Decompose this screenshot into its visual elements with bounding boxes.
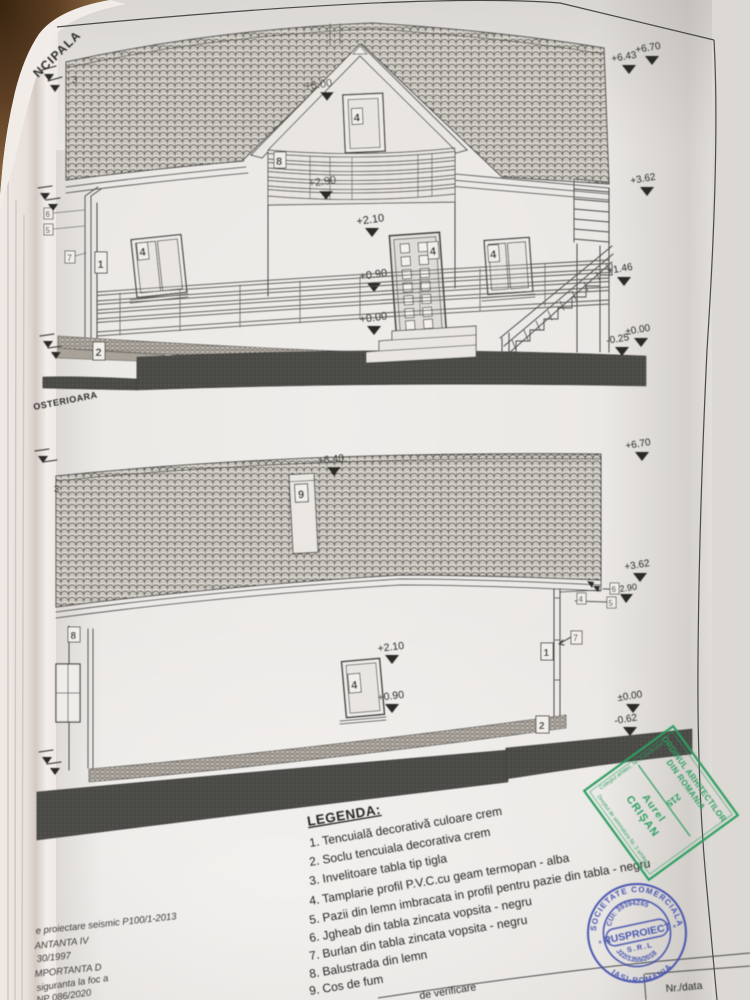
svg-text:8: 8 [71,631,77,642]
svg-text:6: 6 [612,585,617,594]
svg-text:5: 5 [46,226,51,235]
svg-text:3: 3 [54,484,59,494]
svg-text:5: 5 [609,599,614,608]
svg-text:6: 6 [46,210,51,219]
svg-text:7: 7 [67,253,72,263]
svg-text:9: 9 [298,489,305,501]
svg-text:3: 3 [72,75,78,86]
svg-text:7: 7 [573,633,578,643]
svg-text:2: 2 [539,721,545,732]
svg-text:1: 1 [98,259,104,271]
svg-text:2: 2 [96,347,102,359]
svg-text:4: 4 [579,595,584,604]
svg-text:8: 8 [276,156,282,168]
svg-text:1: 1 [544,648,550,659]
